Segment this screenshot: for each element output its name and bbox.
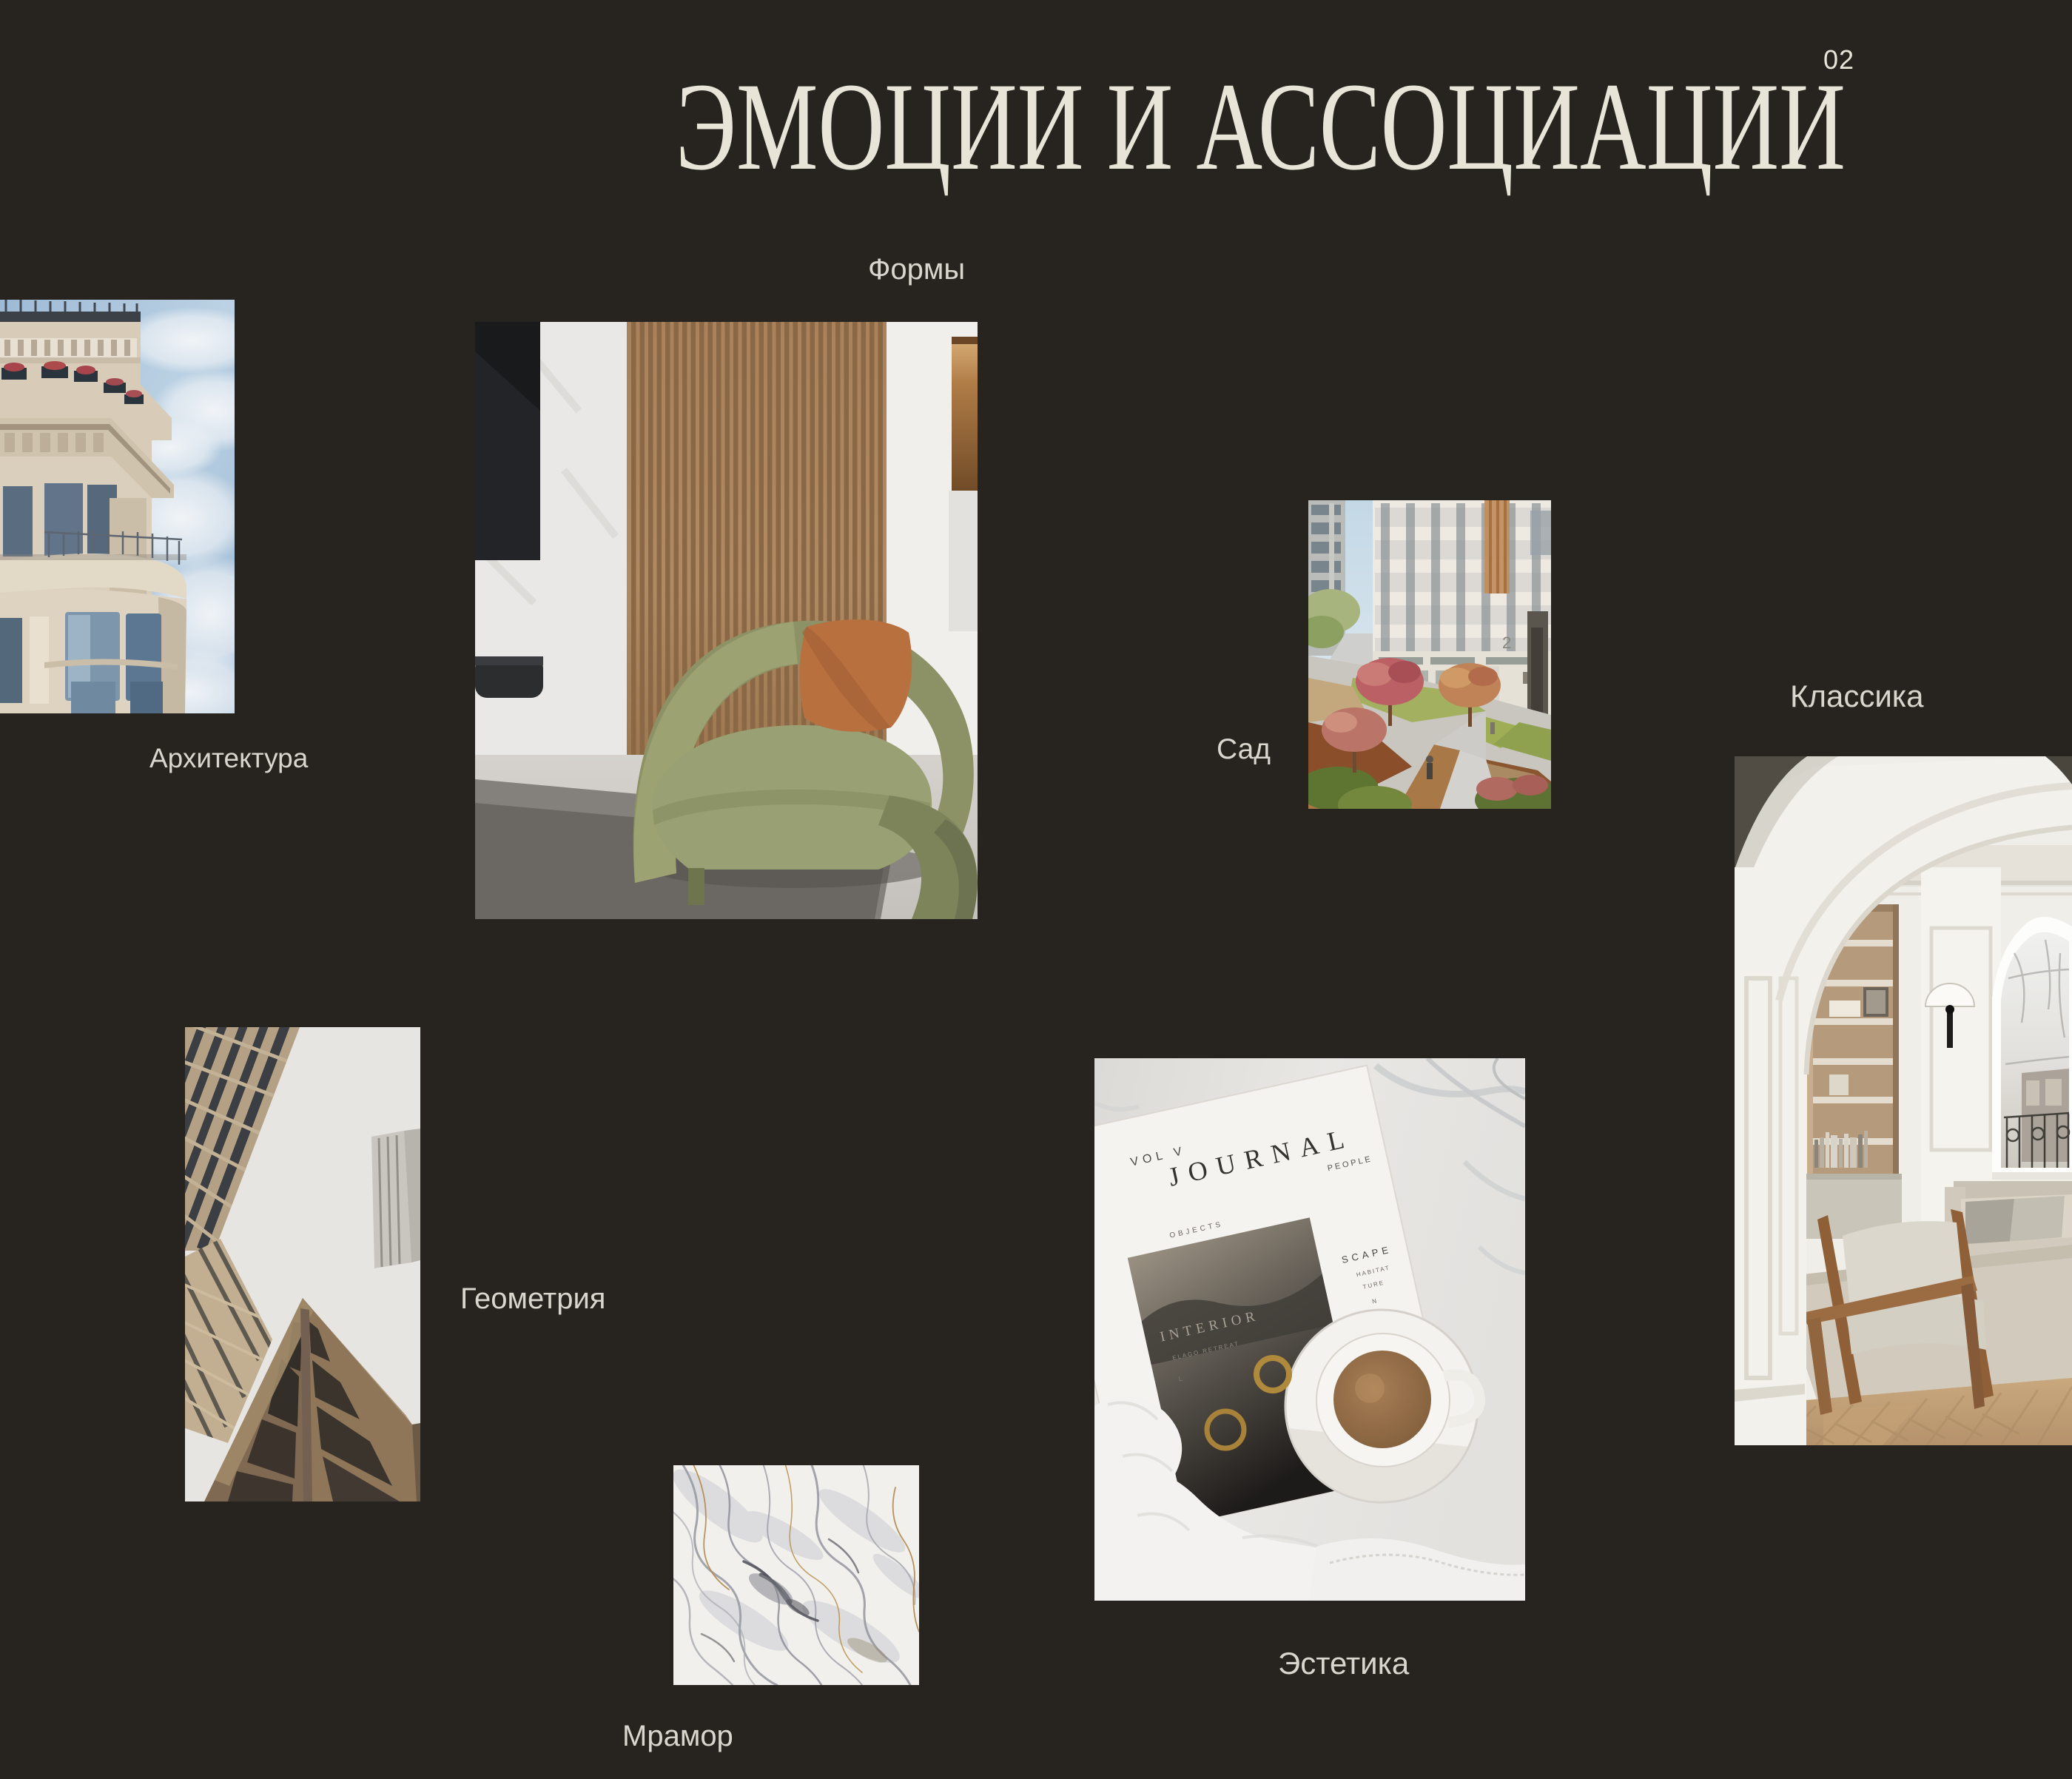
svg-text:2: 2 (1502, 633, 1511, 652)
